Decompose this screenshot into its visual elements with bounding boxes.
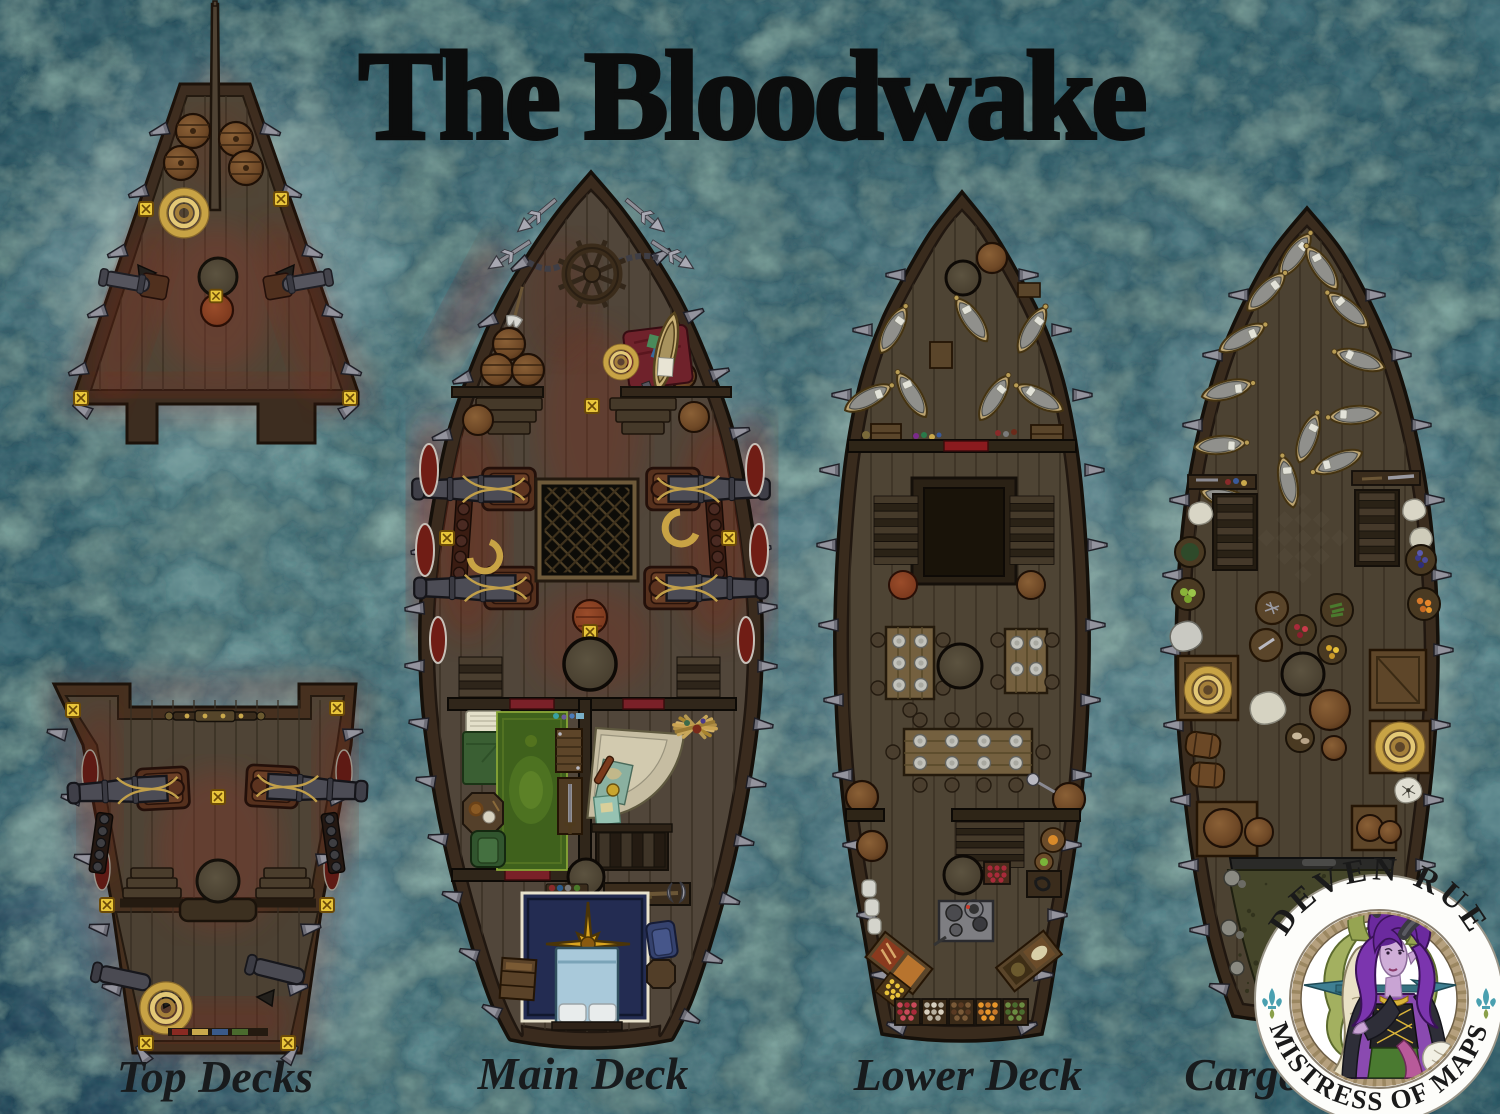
svg-text:Top Decks: Top Decks <box>117 1051 313 1102</box>
svg-text:Main Deck: Main Deck <box>477 1048 689 1099</box>
svg-text:The Bloodwake: The Bloodwake <box>359 27 1145 166</box>
svg-text:Lower Deck: Lower Deck <box>853 1049 1083 1100</box>
